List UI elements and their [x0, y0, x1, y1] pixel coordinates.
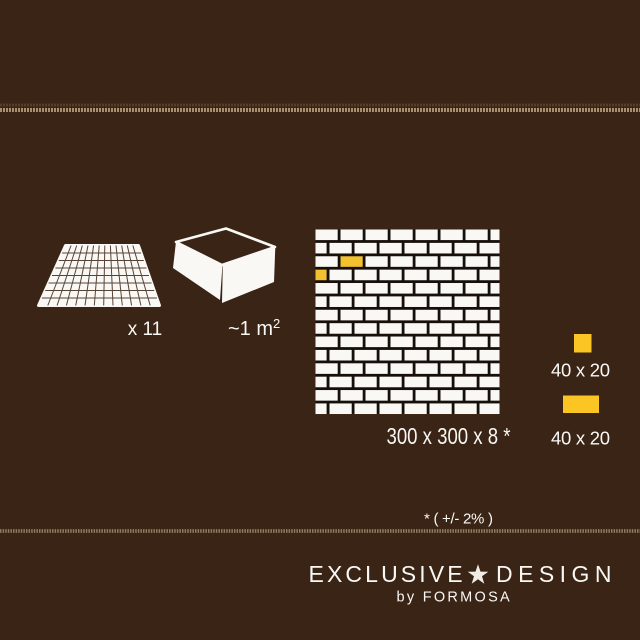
svg-text:300 x 300 x 8 *: 300 x 300 x 8 * — [387, 423, 511, 449]
svg-text:40 x 20: 40 x 20 — [551, 428, 610, 449]
svg-text:by FORMOSA: by FORMOSA — [397, 590, 513, 606]
svg-text:40 x 20: 40 x 20 — [551, 360, 610, 381]
svg-text:x 11: x 11 — [128, 319, 163, 340]
svg-text:EXCLUSIVE: EXCLUSIVE — [309, 561, 466, 587]
svg-text:~1 m2: ~1 m2 — [228, 316, 280, 340]
svg-text:* ( +/- 2% ): * ( +/- 2% ) — [424, 511, 493, 528]
svg-text:DESIGN: DESIGN — [496, 561, 616, 587]
